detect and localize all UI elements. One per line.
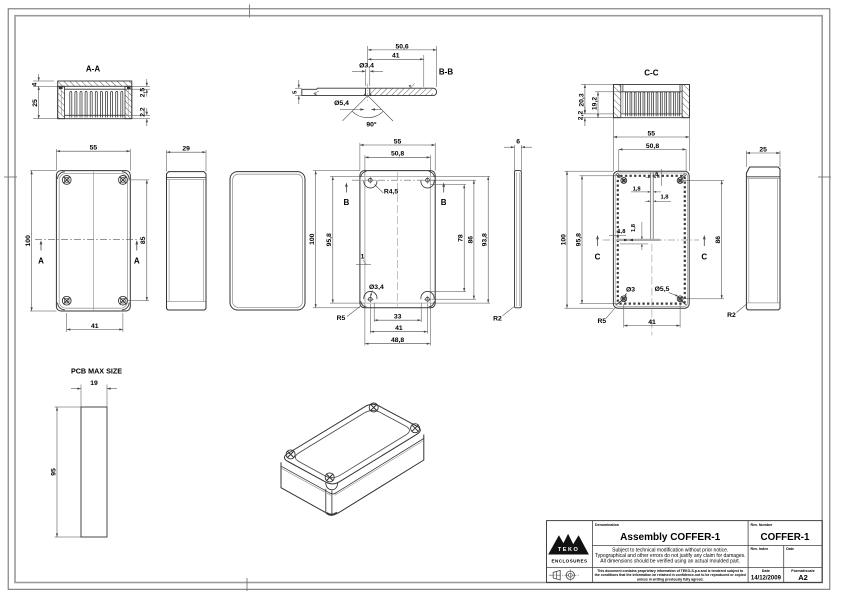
svg-text:Ø5,5: Ø5,5 xyxy=(655,286,670,293)
svg-text:C: C xyxy=(701,253,707,262)
svg-text:TEKO: TEKO xyxy=(558,547,580,553)
svg-text:Date: Date xyxy=(786,547,794,551)
svg-text:A2: A2 xyxy=(798,573,808,582)
svg-text:95,8: 95,8 xyxy=(575,233,582,246)
svg-text:100: 100 xyxy=(560,234,567,246)
svg-text:B-B: B-B xyxy=(439,68,453,77)
svg-text:20,3: 20,3 xyxy=(578,93,585,106)
svg-text:100: 100 xyxy=(25,235,32,247)
svg-text:C: C xyxy=(595,253,601,262)
svg-text:COFFER-1: COFFER-1 xyxy=(761,532,811,543)
svg-text:55: 55 xyxy=(648,130,656,137)
svg-text:Rev. Index: Rev. Index xyxy=(751,547,769,551)
svg-text:14/12/2009: 14/12/2009 xyxy=(751,575,782,581)
svg-text:50,8: 50,8 xyxy=(646,143,659,150)
svg-text:1: 1 xyxy=(361,254,365,261)
svg-text:55: 55 xyxy=(394,138,402,145)
svg-text:Date: Date xyxy=(762,569,770,573)
svg-text:Ø5,4: Ø5,4 xyxy=(334,100,349,107)
svg-text:1,8: 1,8 xyxy=(631,223,637,232)
svg-text:25: 25 xyxy=(32,99,39,107)
svg-text:41: 41 xyxy=(392,53,400,60)
svg-text:55: 55 xyxy=(90,145,98,152)
svg-text:50,8: 50,8 xyxy=(391,151,404,158)
svg-text:78: 78 xyxy=(458,234,465,242)
svg-text:2,2: 2,2 xyxy=(139,107,146,117)
svg-text:A: A xyxy=(38,257,44,266)
svg-text:B: B xyxy=(441,198,447,207)
svg-text:Denomination: Denomination xyxy=(595,523,619,527)
svg-text:All dimensions should be verif: All dimensions should be verified using … xyxy=(600,559,740,565)
svg-text:48,8: 48,8 xyxy=(391,337,404,344)
svg-text:86: 86 xyxy=(467,236,474,244)
svg-text:PCB MAX SIZE: PCB MAX SIZE xyxy=(71,367,122,376)
svg-text:R2: R2 xyxy=(493,316,502,323)
svg-text:1,8: 1,8 xyxy=(633,186,642,192)
svg-text:90°: 90° xyxy=(366,121,377,129)
svg-text:Ø3: Ø3 xyxy=(626,287,635,294)
svg-text:19: 19 xyxy=(90,380,98,387)
svg-text:86: 86 xyxy=(715,236,722,244)
svg-text:A-A: A-A xyxy=(86,65,100,74)
svg-text:Rev. Number: Rev. Number xyxy=(751,523,774,527)
svg-text:R4,5: R4,5 xyxy=(384,189,399,196)
svg-text:33: 33 xyxy=(394,314,402,321)
svg-text:19,2: 19,2 xyxy=(591,97,598,110)
svg-text:R5: R5 xyxy=(337,315,346,322)
svg-text:41: 41 xyxy=(91,323,99,330)
svg-text:R2: R2 xyxy=(727,312,736,319)
svg-text:41: 41 xyxy=(395,325,403,332)
svg-text:1,8: 1,8 xyxy=(660,194,669,200)
svg-text:50,6: 50,6 xyxy=(395,43,408,50)
svg-text:A: A xyxy=(134,257,140,266)
svg-text:unless in writing previously f: unless in writing previously fully agree… xyxy=(637,577,704,581)
svg-text:B: B xyxy=(344,198,350,207)
svg-text:Assembly COFFER-1: Assembly COFFER-1 xyxy=(620,532,720,543)
svg-text:2,5: 2,5 xyxy=(139,88,146,98)
svg-text:ENCLOSURES: ENCLOSURES xyxy=(552,559,588,564)
svg-text:4: 4 xyxy=(31,82,38,86)
svg-text:Ø3,4: Ø3,4 xyxy=(359,63,374,70)
svg-text:100: 100 xyxy=(309,233,316,245)
svg-text:85: 85 xyxy=(140,236,147,244)
svg-text:1,8: 1,8 xyxy=(617,229,626,235)
svg-text:95,8: 95,8 xyxy=(326,233,333,246)
svg-text:93,8: 93,8 xyxy=(482,233,489,246)
svg-text:C-C: C-C xyxy=(644,69,658,78)
svg-text:6: 6 xyxy=(516,138,520,145)
svg-text:41: 41 xyxy=(648,319,656,326)
svg-text:R5: R5 xyxy=(597,318,606,325)
svg-text:95: 95 xyxy=(50,468,57,476)
svg-text:Ø3,4: Ø3,4 xyxy=(369,284,384,291)
svg-text:29: 29 xyxy=(182,146,190,153)
svg-text:2,2: 2,2 xyxy=(577,111,584,121)
svg-text:25: 25 xyxy=(759,146,767,153)
